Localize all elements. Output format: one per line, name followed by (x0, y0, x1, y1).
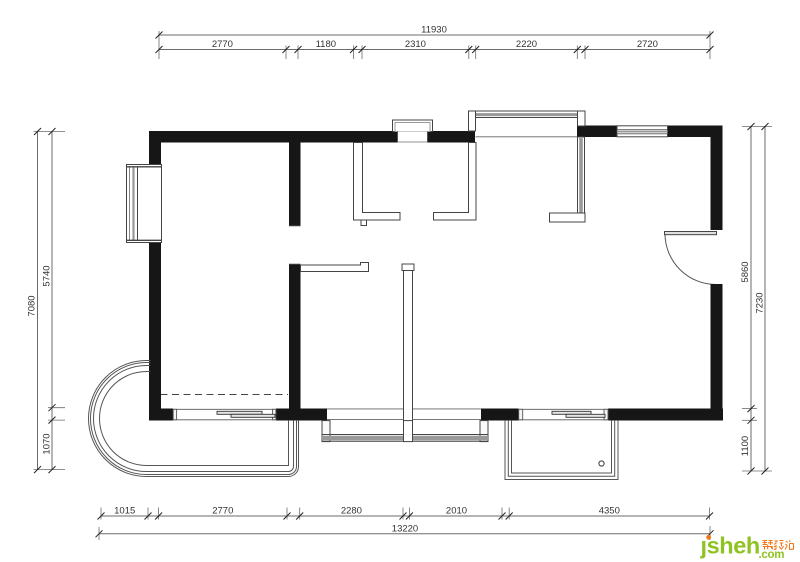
svg-text:2010: 2010 (446, 506, 467, 517)
svg-text:11930: 11930 (421, 25, 447, 36)
svg-text:2280: 2280 (341, 506, 362, 517)
svg-text:4350: 4350 (599, 506, 620, 517)
svg-text:2770: 2770 (212, 39, 233, 50)
svg-text:5860: 5860 (740, 261, 751, 282)
svg-text:13220: 13220 (392, 523, 418, 534)
svg-text:2220: 2220 (516, 39, 537, 50)
svg-text:ȷsheh: ȷsheh (700, 533, 760, 559)
svg-text:1070: 1070 (42, 433, 53, 454)
svg-text:7080: 7080 (27, 295, 38, 316)
svg-text:.com: .com (759, 549, 785, 561)
svg-text:2770: 2770 (212, 506, 233, 517)
svg-text:7230: 7230 (755, 292, 766, 313)
svg-text:1015: 1015 (114, 506, 135, 517)
svg-text:1180: 1180 (316, 39, 336, 50)
svg-text:2310: 2310 (405, 39, 426, 50)
svg-text:1100: 1100 (740, 436, 751, 456)
svg-text:5740: 5740 (42, 265, 53, 286)
svg-text:2720: 2720 (637, 39, 658, 50)
